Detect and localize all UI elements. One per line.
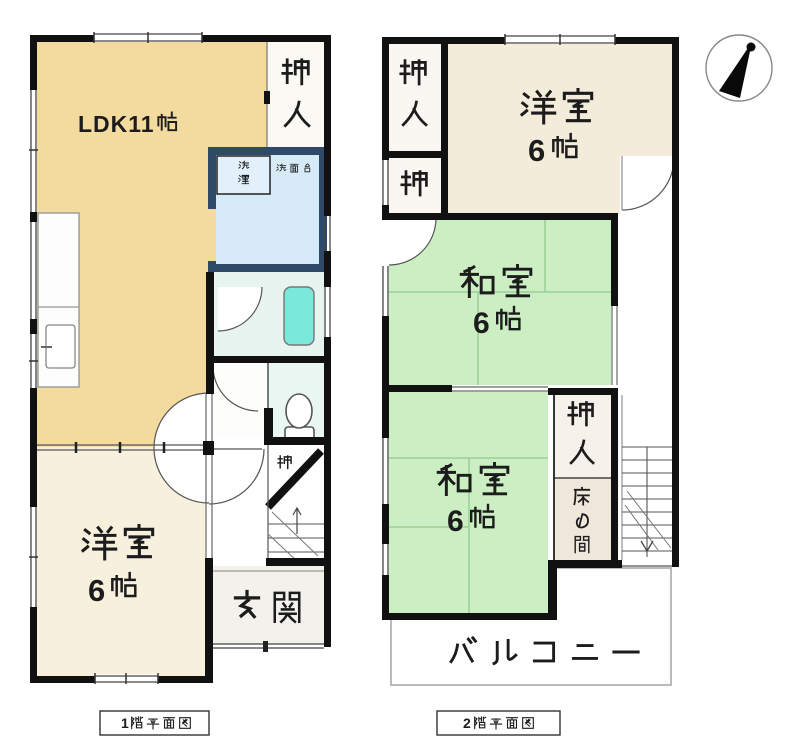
svg-text:6: 6 <box>473 307 490 340</box>
svg-text:6: 6 <box>528 133 545 168</box>
svg-text:6: 6 <box>88 573 105 608</box>
svg-text:2: 2 <box>463 715 471 731</box>
svg-text:1: 1 <box>121 715 129 731</box>
svg-text:6: 6 <box>447 505 464 538</box>
svg-text:LDK11: LDK11 <box>78 111 155 137</box>
